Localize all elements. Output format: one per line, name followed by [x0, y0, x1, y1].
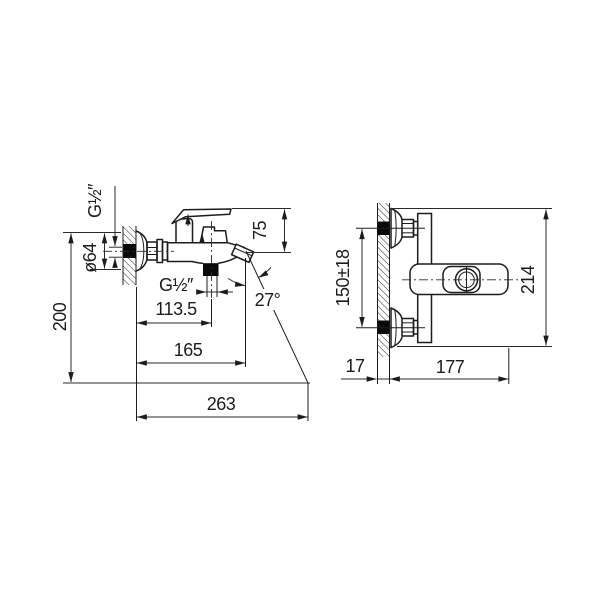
front-wall-section [378, 203, 390, 384]
lower-inlet-pipe [378, 321, 390, 335]
spout-axis-line [246, 251, 308, 383]
dim-label-outlet-thread: G½″ [159, 275, 194, 295]
drawing-canvas: G½″ ø64 200 G½″ 113.5 [0, 0, 600, 600]
diverter-knob [201, 227, 228, 243]
cartridge [176, 219, 193, 243]
dim-label-spout-angle: 27° [255, 290, 281, 310]
front-view-dimensions: 150±18 214 17 177 [333, 209, 552, 385]
front-view: 150±18 214 17 177 [333, 203, 552, 384]
lever [172, 209, 231, 224]
faucet-technical-drawing: G½″ ø64 200 G½″ 113.5 [0, 0, 600, 600]
faucet-body-front [402, 214, 518, 343]
dim-label-flange-diameter: ø64 [80, 243, 100, 273]
dim-label-overall-height: 214 [518, 265, 538, 294]
dim-label-spout-reach-total: 165 [174, 340, 203, 360]
dim-label-overall-depth: 263 [207, 394, 236, 414]
dim-label-body-width: 177 [436, 357, 465, 377]
faucet-body-side [168, 243, 254, 264]
side-view: G½″ ø64 200 G½″ 113.5 [50, 183, 310, 421]
dim-label-spout-reach: 113.5 [155, 299, 197, 319]
dim-label-mounting-height: 200 [50, 302, 70, 331]
dim-label-handle-height: 75 [250, 221, 270, 241]
dim-label-inlet-thread: G½″ [85, 183, 105, 218]
dim-label-inlet-spacing: 150±18 [333, 249, 353, 306]
side-wall-section [123, 226, 136, 285]
dim-label-wall-thickness: 17 [345, 356, 365, 376]
